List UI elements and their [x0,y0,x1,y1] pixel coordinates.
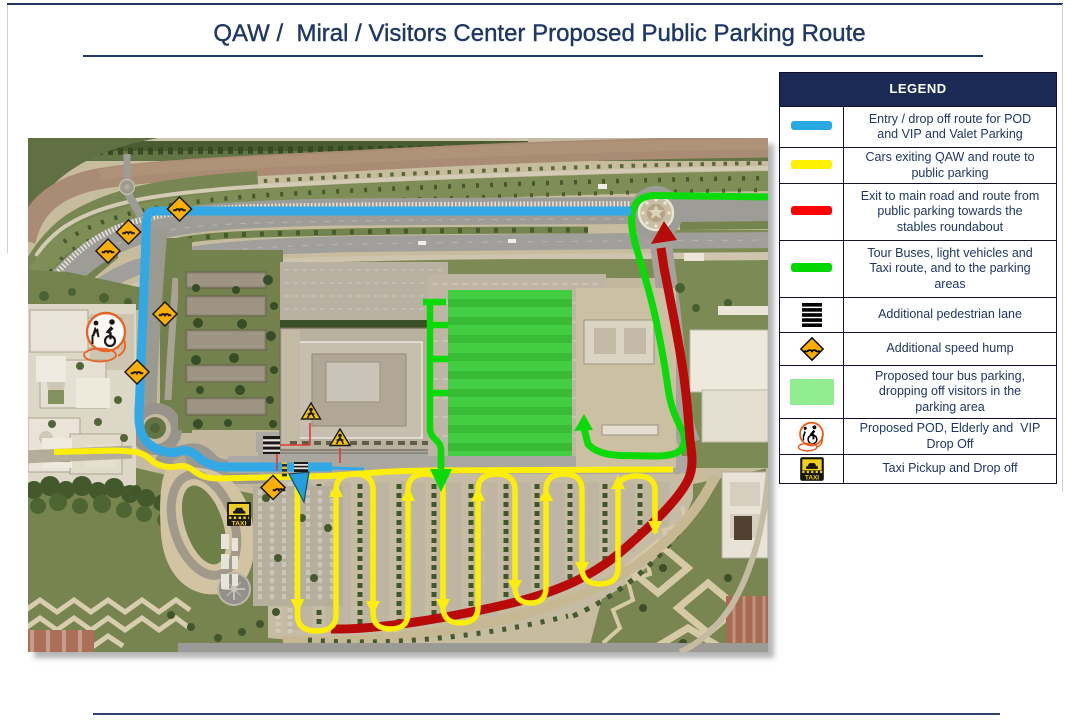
svg-text:TAXI: TAXI [804,474,818,481]
